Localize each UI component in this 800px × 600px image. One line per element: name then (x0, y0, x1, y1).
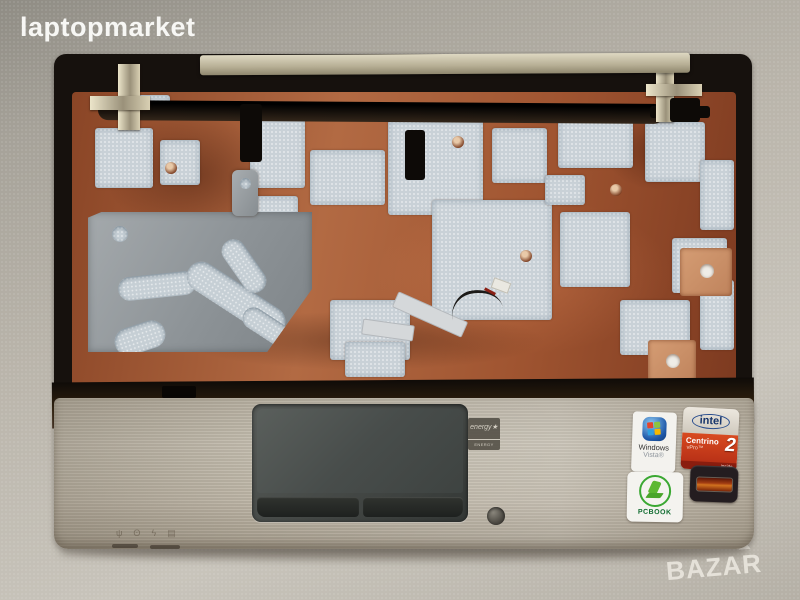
magnesium-touchpad-plate (88, 212, 312, 352)
touchpad-bezel (252, 404, 468, 522)
hdd-led-icon: ▤ (167, 528, 176, 539)
foam-pad (310, 150, 385, 205)
hinge-rod (98, 100, 664, 124)
plate-slot (117, 270, 197, 302)
foam-pad (700, 160, 734, 230)
front-edge-slot (112, 544, 138, 548)
touchpad-right-button (363, 497, 463, 517)
foam-pad (545, 175, 585, 205)
touchpad-left-button (257, 497, 359, 517)
screw-hole (610, 184, 622, 196)
foam-pad (492, 128, 547, 183)
touchpad-surface (257, 409, 463, 493)
pcbook-sticker: PCBOOK (627, 472, 684, 523)
front-led-row: ψ ʘ ϟ ▤ (116, 528, 176, 539)
vista-line2: Vista® (631, 451, 675, 461)
fingerprint-sensor-window (696, 476, 734, 492)
energy-star-label: ENERGY STAR (468, 439, 500, 449)
intel-centrino-sticker: intel Centrino vPro™ 2 inside (680, 407, 739, 472)
screw-hole (520, 250, 532, 262)
fingerprint-reader (689, 465, 738, 503)
copper-pad (680, 248, 732, 296)
left-hinge-arm (90, 96, 150, 110)
latch-notch (162, 386, 196, 398)
hinge-cover-strip (200, 53, 690, 76)
laptopmarket-watermark: laptopmarket (20, 12, 196, 43)
screw-hole (165, 162, 177, 174)
charge-led-icon: ϟ (151, 528, 156, 539)
windows-vista-sticker: Windows Vista® (631, 411, 677, 472)
pcbook-ring (639, 475, 672, 508)
foam-pad (645, 122, 705, 182)
copper-pad (648, 340, 696, 382)
plate-hole (112, 226, 128, 242)
front-edge-slot (150, 545, 180, 549)
windows-flag-icon (647, 422, 662, 437)
touchpad-toggle-button (487, 507, 505, 525)
intel-oval-logo: intel (691, 413, 730, 430)
bracket-hole (240, 178, 251, 189)
black-bracket (240, 104, 262, 162)
foam-pad (95, 128, 153, 188)
power-led-icon: ʘ (133, 528, 140, 539)
pcbook-laptop-base-icon (645, 493, 664, 498)
copper-pad-hole (700, 264, 714, 278)
copper-pad-hole (666, 354, 680, 368)
windows-orb (642, 417, 667, 442)
right-hinge-arm (646, 84, 702, 96)
black-bracket (405, 130, 425, 180)
centrino2-number: 2 (725, 435, 737, 458)
laptop-palmrest-assembly: energy★ ENERGY STAR ψ ʘ ϟ ▤ Windows Vist… (50, 44, 756, 558)
wireless-led-icon: ψ (116, 528, 122, 539)
energy-star-script: energy★ (468, 418, 500, 439)
foam-pad (345, 342, 405, 377)
energy-star-logo: energy★ ENERGY STAR (468, 418, 500, 450)
foam-pad (558, 118, 633, 168)
pcbook-label: PCBOOK (627, 507, 683, 520)
screw-hole (452, 136, 464, 148)
foam-pad (560, 212, 630, 287)
foam-pad (160, 140, 200, 185)
energy-star-star-icon: ★ (492, 424, 498, 431)
metal-bracket-tab (232, 170, 258, 216)
intel-logo-area: intel (682, 407, 739, 436)
energy-star-script-text: energy (470, 424, 491, 431)
right-hinge-block (670, 98, 700, 122)
product-photo: energy★ ENERGY STAR ψ ʘ ϟ ▤ Windows Vist… (0, 0, 800, 600)
